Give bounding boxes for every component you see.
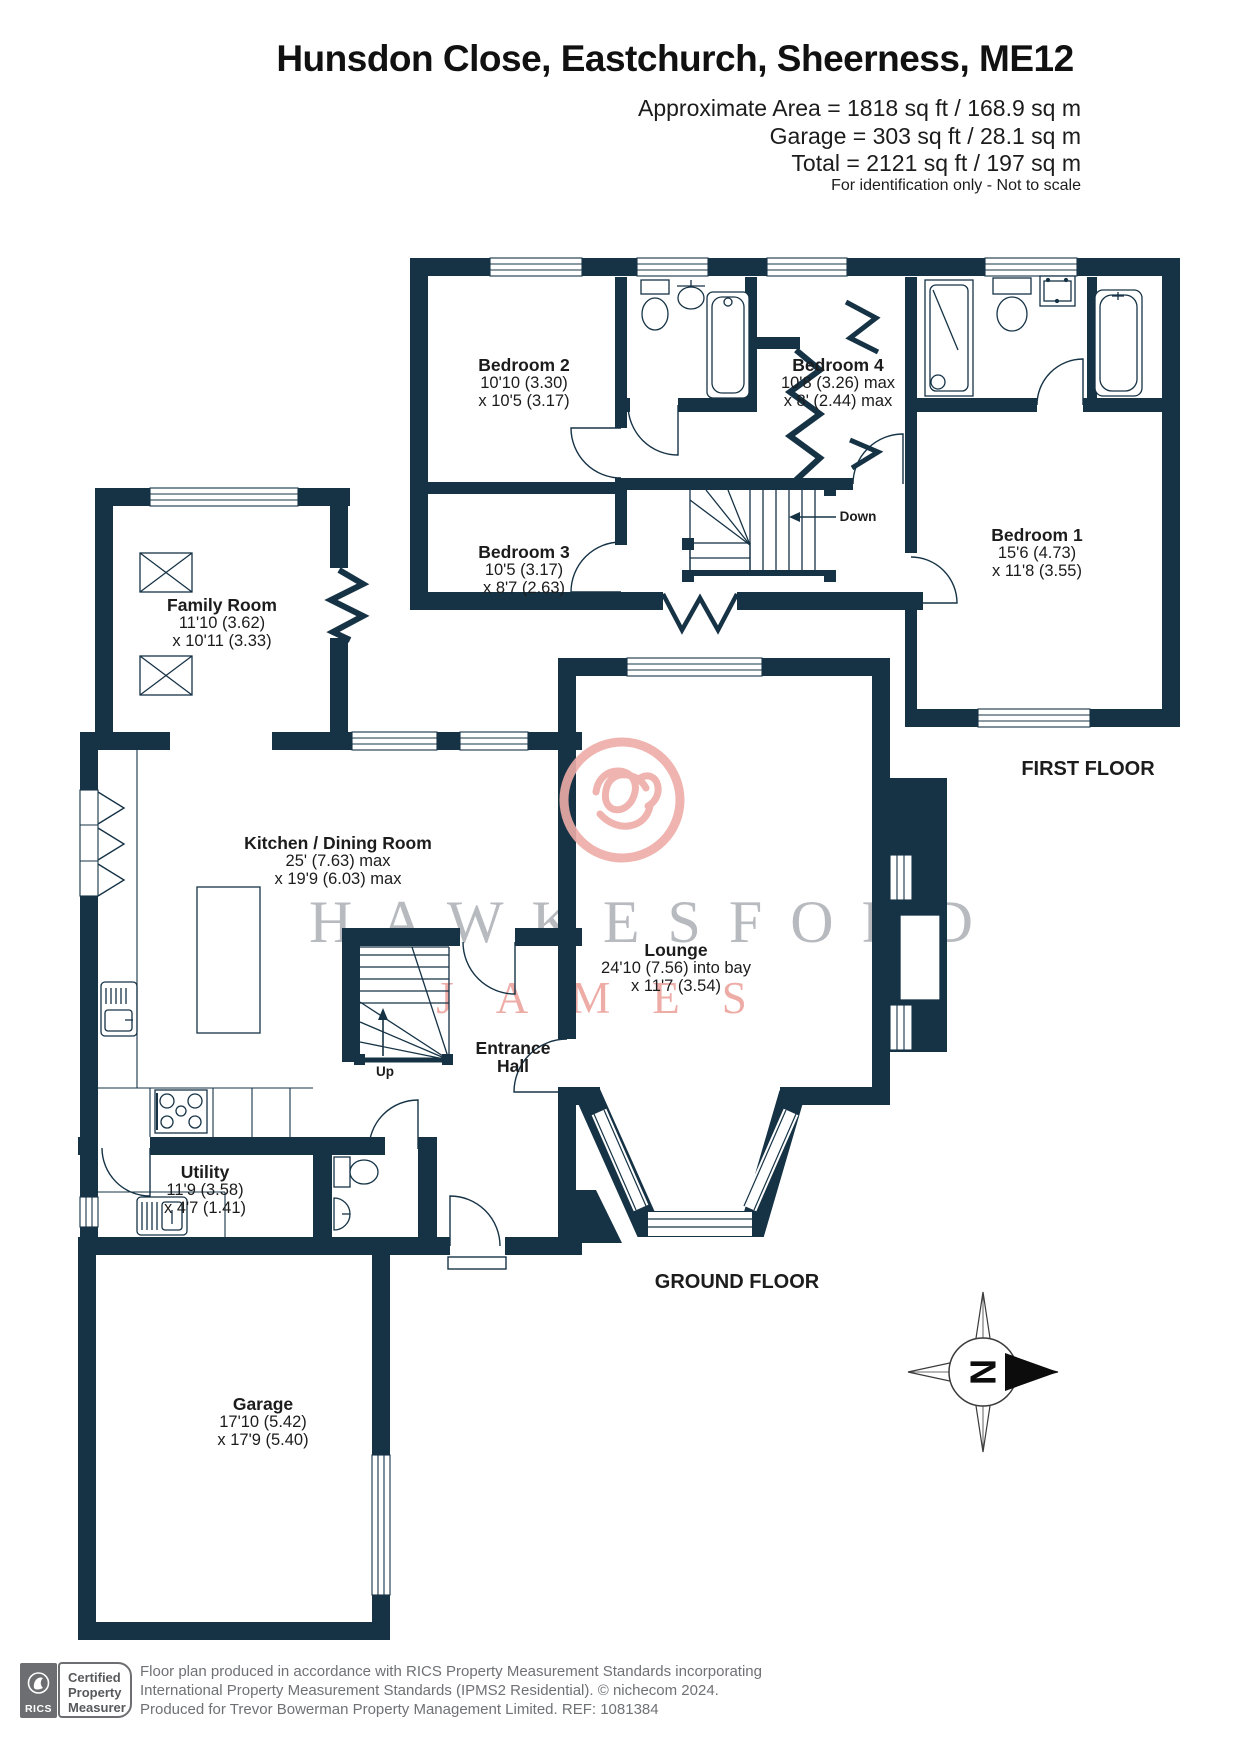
first-floor-label: FIRST FLOOR xyxy=(1021,758,1154,781)
bedroom1-window xyxy=(978,709,1090,727)
bedroom4-name: Bedroom 4 xyxy=(781,356,895,374)
bedroom4-dim1: 10'8 (3.26) max xyxy=(781,374,895,392)
garage-dim1: 17'10 (5.42) xyxy=(217,1413,308,1431)
badge-line3: Measurer xyxy=(68,1700,130,1715)
bath-icon-ensuite xyxy=(1095,290,1142,396)
kitchen-casement-windows xyxy=(80,790,124,896)
room-label-family-room: Family Room 11'10 (3.62) x 10'11 (3.33) xyxy=(167,596,277,650)
garage-name: Garage xyxy=(217,1395,308,1413)
page-title: Hunsdon Close, Eastchurch, Sheerness, ME… xyxy=(240,38,1110,80)
footer-line2: International Property Measurement Stand… xyxy=(140,1682,719,1699)
chimney-recess xyxy=(900,915,940,1000)
floorplan-page: HAWKESFORD JAMES xyxy=(0,0,1241,1755)
basin-icon-wc xyxy=(334,1198,350,1230)
kitchen-hall-door xyxy=(463,942,515,994)
badge-line1: Certified xyxy=(68,1670,130,1685)
room-label-bedroom3: Bedroom 3 10'5 (3.17) x 8'7 (2.63) xyxy=(478,543,569,597)
kitchen-dim1: 25' (7.63) max xyxy=(244,852,432,870)
bedroom2-door xyxy=(571,428,621,478)
bedroom4-zigzag-top xyxy=(846,302,878,352)
bedroom3-dim1: 10'5 (3.17) xyxy=(478,561,569,579)
room-label-bedroom2: Bedroom 2 10'10 (3.30) x 10'5 (3.17) xyxy=(478,356,569,410)
room-label-utility: Utility 11'9 (3.58) x 4'7 (1.41) xyxy=(164,1163,246,1217)
room-label-kitchen: Kitchen / Dining Room 25' (7.63) max x 1… xyxy=(244,834,432,888)
room-label-entrance-hall: Entrance Hall xyxy=(476,1039,551,1075)
kitchen-top-window-1 xyxy=(352,732,437,750)
utility-dim2: x 4'7 (1.41) xyxy=(164,1199,246,1217)
bedroom4-window xyxy=(767,258,847,276)
kitchen-name: Kitchen / Dining Room xyxy=(244,834,432,852)
bathroom-window xyxy=(637,258,708,276)
scale-disclaimer: For identification only - Not to scale xyxy=(831,177,1081,195)
front-door xyxy=(450,1196,500,1246)
toilet-icon-wc xyxy=(334,1157,378,1187)
stairs-first-floor xyxy=(684,490,836,573)
utility-name: Utility xyxy=(164,1163,246,1181)
bedroom2-name: Bedroom 2 xyxy=(478,356,569,374)
hob-icon xyxy=(155,1090,207,1133)
kitchen-sink-icon xyxy=(101,982,137,1036)
approximate-area: Approximate Area = 1818 sq ft / 168.9 sq… xyxy=(638,95,1081,122)
bedroom4-door xyxy=(853,434,903,484)
shower-icon-ensuite xyxy=(925,280,973,396)
lounge-bay-window xyxy=(588,1094,796,1236)
total-area: Total = 2121 sq ft / 197 sq m xyxy=(791,150,1081,177)
ground-floor-label: GROUND FLOOR xyxy=(655,1271,819,1294)
bedroom1-dim1: 15'6 (4.73) xyxy=(991,544,1082,562)
rics-text: RICS xyxy=(20,1703,57,1715)
stairs-ground-floor xyxy=(354,947,453,1065)
badge-line2: Property xyxy=(68,1685,130,1700)
entrance-hall-line1: Entrance xyxy=(476,1039,551,1057)
footer-line1: Floor plan produced in accordance with R… xyxy=(140,1663,762,1680)
bedroom3-name: Bedroom 3 xyxy=(478,543,569,561)
north-arrow xyxy=(1005,1353,1058,1391)
room-label-lounge: Lounge 24'10 (7.56) into bay x 11'7 (3.5… xyxy=(601,941,751,995)
bedroom3-dim2: x 8'7 (2.63) xyxy=(478,579,569,597)
garage-dim2: x 17'9 (5.40) xyxy=(217,1431,308,1449)
bedroom1-name: Bedroom 1 xyxy=(991,526,1082,544)
basin-icon-ensuite xyxy=(1040,276,1075,306)
skylight-icon-1 xyxy=(140,553,192,592)
chimney-window-bottom xyxy=(890,1005,912,1050)
family-room-window xyxy=(150,488,298,506)
lounge-dim1: 24'10 (7.56) into bay xyxy=(601,959,751,977)
bedroom4-dim2: x 8' (2.44) max xyxy=(781,392,895,410)
utility-window xyxy=(80,1197,98,1227)
room-label-bedroom4: Bedroom 4 10'8 (3.26) max x 8' (2.44) ma… xyxy=(781,356,895,410)
ensuite-window xyxy=(985,258,1077,276)
utility-dim1: 11'9 (3.58) xyxy=(164,1181,246,1199)
family-room-dim1: 11'10 (3.62) xyxy=(167,614,277,632)
compass: N xyxy=(908,1292,1058,1452)
bedroom3-door xyxy=(571,542,621,592)
utility-door xyxy=(102,1148,150,1196)
kitchen-dim2: x 19'9 (6.03) max xyxy=(244,870,432,888)
lounge-dim2: x 11'7 (3.54) xyxy=(601,977,751,995)
firstfloor-chevron xyxy=(663,594,737,630)
ensuite-door xyxy=(1037,359,1083,405)
footer-line3: Produced for Trevor Bowerman Property Ma… xyxy=(140,1701,659,1718)
compass-north-label: N xyxy=(963,1359,1004,1385)
family-room-dim2: x 10'11 (3.33) xyxy=(167,632,277,650)
family-room-bifold xyxy=(331,570,363,640)
lounge-top-window xyxy=(627,658,762,676)
garage-door xyxy=(372,1455,390,1595)
floorplan-drawing: N xyxy=(0,0,1241,1755)
family-room-name: Family Room xyxy=(167,596,277,614)
chimney-window-top xyxy=(890,855,912,900)
watermark-logo xyxy=(564,742,680,858)
down-arrow xyxy=(789,512,800,522)
skylight-icon-2 xyxy=(140,656,192,695)
bedroom2-dim2: x 10'5 (3.17) xyxy=(478,392,569,410)
entrance-hall-line2: Hall xyxy=(476,1057,551,1075)
stairs-down-label: Down xyxy=(840,509,877,524)
basin-icon-bathroom xyxy=(677,280,705,309)
front-step xyxy=(448,1257,506,1269)
rics-logo: RICS xyxy=(20,1663,57,1718)
bathroom-door xyxy=(628,405,678,455)
kitchen-top-window-2 xyxy=(460,732,528,750)
toilet-icon-ensuite xyxy=(993,278,1031,331)
toilet-icon-bathroom xyxy=(641,280,669,330)
bedroom1-dim2: x 11'8 (3.55) xyxy=(991,562,1082,580)
certified-property-measurer-badge: Certified Property Measurer xyxy=(58,1662,132,1718)
garage-area: Garage = 303 sq ft / 28.1 sq m xyxy=(770,123,1081,150)
room-label-bedroom1: Bedroom 1 15'6 (4.73) x 11'8 (3.55) xyxy=(991,526,1082,580)
room-label-garage: Garage 17'10 (5.42) x 17'9 (5.40) xyxy=(217,1395,308,1449)
bath-icon-bathroom xyxy=(707,292,749,398)
bedroom2-dim1: 10'10 (3.30) xyxy=(478,374,569,392)
kitchen-island xyxy=(197,887,260,1033)
stairs-up-label: Up xyxy=(376,1064,394,1079)
bedroom2-window xyxy=(490,258,582,276)
lounge-name: Lounge xyxy=(601,941,751,959)
